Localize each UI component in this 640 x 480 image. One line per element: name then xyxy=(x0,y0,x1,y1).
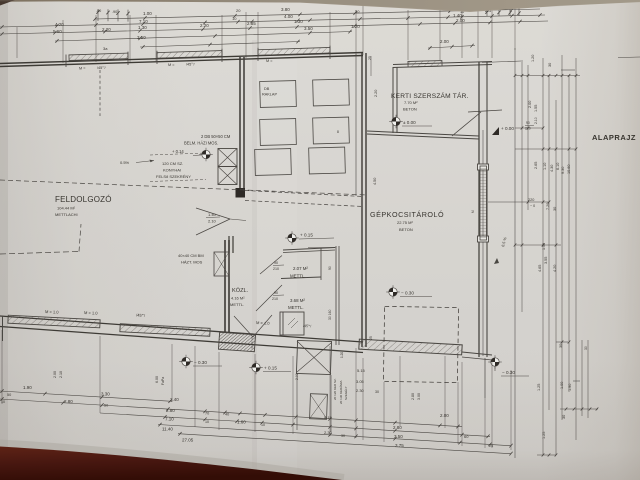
svg-text:3a: 3a xyxy=(103,46,108,51)
svg-text:25: 25 xyxy=(489,444,493,448)
svg-text:M =: M = xyxy=(168,63,175,67)
svg-text:/45°'/: /45°'/ xyxy=(303,324,311,328)
svg-text:10.60: 10.60 xyxy=(567,164,571,174)
svg-text:4.50: 4.50 xyxy=(373,178,377,185)
svg-text:1.30: 1.30 xyxy=(138,25,147,30)
svg-text:5.15: 5.15 xyxy=(324,415,333,420)
svg-text:220: 220 xyxy=(528,198,534,202)
svg-text:3.50: 3.50 xyxy=(304,26,313,31)
svg-text:104.44 M²: 104.44 M² xyxy=(57,206,76,211)
svg-text:3.50: 3.50 xyxy=(137,35,146,40)
svg-text:M =: M = xyxy=(266,59,273,63)
svg-text:1.55: 1.55 xyxy=(534,105,538,112)
svg-text:30: 30 xyxy=(559,344,563,348)
svg-text:1.00: 1.00 xyxy=(143,11,152,16)
svg-text:4.16 M²: 4.16 M² xyxy=(231,296,245,301)
svg-text:+ 0.15: + 0.15 xyxy=(264,366,277,371)
svg-text:1.30: 1.30 xyxy=(294,19,303,24)
svg-text:2.20: 2.20 xyxy=(102,27,111,32)
svg-text:KERTI SZERSZÁM TÁR.: KERTI SZERSZÁM TÁR. xyxy=(391,91,469,100)
svg-text:/45°'/: /45°'/ xyxy=(186,63,196,67)
svg-text:90: 90 xyxy=(274,291,278,295)
svg-text:2.80: 2.80 xyxy=(393,425,402,430)
svg-text:4.30: 4.30 xyxy=(550,165,554,172)
svg-text:2.10: 2.10 xyxy=(208,219,217,224)
svg-text:2.65: 2.65 xyxy=(534,162,538,169)
svg-text:M = 1.0: M = 1.0 xyxy=(45,309,59,315)
svg-text:3.80: 3.80 xyxy=(281,7,290,12)
svg-text:M = 1.0: M = 1.0 xyxy=(84,310,98,316)
svg-text:1.10: 1.10 xyxy=(543,163,547,170)
svg-text:210: 210 xyxy=(272,297,278,301)
svg-text:60: 60 xyxy=(464,434,469,439)
svg-text:METTL.: METTL. xyxy=(230,302,244,307)
svg-text:5.15: 5.15 xyxy=(357,368,366,373)
svg-text:BETON: BETON xyxy=(399,227,413,232)
svg-text:1.20: 1.20 xyxy=(531,55,535,62)
svg-text:7.10: 7.10 xyxy=(165,417,174,422)
svg-text:10: 10 xyxy=(205,420,209,424)
svg-text:2.85: 2.85 xyxy=(247,21,256,26)
svg-text:50: 50 xyxy=(104,404,108,408)
svg-text:.40: .40 xyxy=(96,9,101,13)
svg-text:10: 10 xyxy=(261,423,265,427)
svg-text:/45°'/: /45°'/ xyxy=(97,66,107,70)
svg-text:KONYHAI: KONYHAI xyxy=(163,168,181,173)
svg-text:7.10: 7.10 xyxy=(139,19,148,24)
svg-text:+ 0.15: + 0.15 xyxy=(300,233,313,238)
svg-text:2.00: 2.00 xyxy=(295,373,299,380)
svg-text:2.10: 2.10 xyxy=(59,371,63,378)
svg-text:3.00: 3.00 xyxy=(417,393,421,400)
svg-text:2 DB 50×50 CM: 2 DB 50×50 CM xyxy=(201,134,231,139)
svg-text:METTL.: METTL. xyxy=(288,305,304,310)
svg-text:4.00: 4.00 xyxy=(284,14,293,19)
svg-text:5.60: 5.60 xyxy=(53,29,62,34)
svg-text:90: 90 xyxy=(328,266,332,270)
svg-text:2.30: 2.30 xyxy=(324,430,333,435)
svg-text:30: 30 xyxy=(553,207,557,211)
svg-text:2.80: 2.80 xyxy=(64,399,73,404)
svg-text:2.10: 2.10 xyxy=(534,117,538,124)
svg-text:30: 30 xyxy=(584,346,588,350)
svg-text:25: 25 xyxy=(369,336,373,340)
svg-text:9.30: 9.30 xyxy=(561,167,565,174)
svg-text:METTLACHI: METTLACHI xyxy=(55,212,78,217)
svg-text:/45°'/: /45°'/ xyxy=(136,313,146,318)
svg-text:1.60: 1.60 xyxy=(237,420,246,425)
svg-text:1.25: 1.25 xyxy=(542,432,546,439)
svg-text:20 120 KER SZ.: 20 120 KER SZ. xyxy=(333,378,337,400)
svg-text:10: 10 xyxy=(1,400,5,404)
svg-text:.90: .90 xyxy=(112,10,117,14)
svg-text:FELDOLGOZÓ: FELDOLGOZÓ xyxy=(55,195,112,204)
svg-text:2.00: 2.00 xyxy=(53,371,57,378)
svg-text:− 0.30: − 0.30 xyxy=(401,291,414,296)
svg-text:+ 0.14: + 0.14 xyxy=(172,149,184,154)
svg-text:2.80: 2.80 xyxy=(166,408,175,413)
svg-text:27.05: 27.05 xyxy=(182,438,194,443)
svg-text:3.68 M²: 3.68 M² xyxy=(290,298,305,303)
svg-text:RAKLAP: RAKLAP xyxy=(262,93,277,97)
svg-text:3.50: 3.50 xyxy=(394,434,403,439)
svg-text:1.00: 1.00 xyxy=(560,382,564,389)
svg-text:3.05: 3.05 xyxy=(356,379,365,384)
svg-text:± 0.00: ± 0.00 xyxy=(403,120,416,125)
svg-text:FaPa: FaPa xyxy=(161,377,165,385)
svg-text:− 0.30: − 0.30 xyxy=(502,370,515,375)
svg-text:2.00: 2.00 xyxy=(440,39,449,44)
svg-text:8: 8 xyxy=(337,130,339,134)
svg-text:+ 0.00: + 0.00 xyxy=(501,126,514,131)
svg-text:2.00: 2.00 xyxy=(456,18,465,23)
svg-text:2.40: 2.40 xyxy=(170,397,179,402)
svg-text:90: 90 xyxy=(274,261,278,265)
svg-text:KÖZL.: KÖZL. xyxy=(232,287,249,294)
svg-text:30 160: 30 160 xyxy=(328,310,332,320)
svg-text:M: M xyxy=(471,210,475,213)
svg-text:SZEGÉLY: SZEGÉLY xyxy=(343,386,348,400)
svg-text:− 0.30: − 0.30 xyxy=(194,360,207,365)
svg-text:GÉPKOCSITÁROLÓ: GÉPKOCSITÁROLÓ xyxy=(370,210,444,219)
svg-text:30: 30 xyxy=(341,434,345,438)
svg-text:2.00: 2.00 xyxy=(528,101,532,108)
svg-text:1.90: 1.90 xyxy=(23,385,32,390)
svg-text:METTL.: METTL. xyxy=(290,274,306,279)
svg-text:1.20: 1.20 xyxy=(340,352,344,358)
svg-text:120 CM SZ.: 120 CM SZ. xyxy=(162,161,183,166)
svg-text:2.20: 2.20 xyxy=(374,90,378,97)
svg-text:4.20: 4.20 xyxy=(553,265,557,272)
svg-text:20 130 KERÁMIA: 20 130 KERÁMIA xyxy=(339,380,343,404)
svg-text:2.07 M²: 2.07 M² xyxy=(293,266,308,271)
svg-text:7.70 M²: 7.70 M² xyxy=(404,100,418,105)
svg-text:3.55: 3.55 xyxy=(544,257,548,264)
svg-text:2.30: 2.30 xyxy=(356,388,365,393)
svg-text:11.40: 11.40 xyxy=(162,427,173,432)
svg-text:10: 10 xyxy=(232,16,237,21)
svg-text:FELSő SZEKRÉNY: FELSő SZEKRÉNY xyxy=(156,174,191,179)
svg-text:BELM. HÁZI MOS.: BELM. HÁZI MOS. xyxy=(184,141,218,146)
svg-text:30: 30 xyxy=(548,63,552,67)
svg-text:1.20: 1.20 xyxy=(351,24,360,29)
svg-text:30: 30 xyxy=(375,390,379,394)
svg-text:6.10: 6.10 xyxy=(556,163,560,170)
svg-text:M =: M = xyxy=(79,67,86,71)
svg-text:M = 1.0: M = 1.0 xyxy=(256,320,271,326)
svg-text:3.30: 3.30 xyxy=(101,392,110,397)
svg-text:20: 20 xyxy=(236,8,241,13)
svg-text:0.5%: 0.5% xyxy=(120,160,130,165)
svg-text:4.65: 4.65 xyxy=(538,265,542,272)
svg-text:40: 40 xyxy=(225,413,229,417)
svg-text:7.20: 7.20 xyxy=(546,203,550,210)
svg-text:1.55: 1.55 xyxy=(542,243,546,250)
svg-text:30: 30 xyxy=(562,415,566,419)
svg-text:1.90: 1.90 xyxy=(568,384,572,391)
svg-text:HÁZT. MOS: HÁZT. MOS xyxy=(181,260,203,265)
svg-text:DB: DB xyxy=(264,87,270,91)
svg-text:2.80: 2.80 xyxy=(411,393,415,400)
svg-text:25: 25 xyxy=(368,56,372,60)
svg-text:1.25: 1.25 xyxy=(537,384,541,391)
svg-text:2.20: 2.20 xyxy=(200,23,209,28)
svg-text:210: 210 xyxy=(273,267,279,271)
svg-text:22.75 M²: 22.75 M² xyxy=(397,220,413,225)
svg-text:BETON: BETON xyxy=(403,107,417,112)
svg-text:− 0: − 0 xyxy=(530,204,535,208)
svg-text:3.75: 3.75 xyxy=(395,443,404,448)
svg-text:6.00: 6.00 xyxy=(155,376,159,383)
svg-text:70: 70 xyxy=(205,412,209,416)
svg-text:50: 50 xyxy=(7,393,11,397)
svg-text:40×40 CM BM: 40×40 CM BM xyxy=(178,253,204,258)
svg-text:2.00: 2.00 xyxy=(440,413,449,418)
svg-text:ALAPRAJZ: ALAPRAJZ xyxy=(592,133,636,142)
